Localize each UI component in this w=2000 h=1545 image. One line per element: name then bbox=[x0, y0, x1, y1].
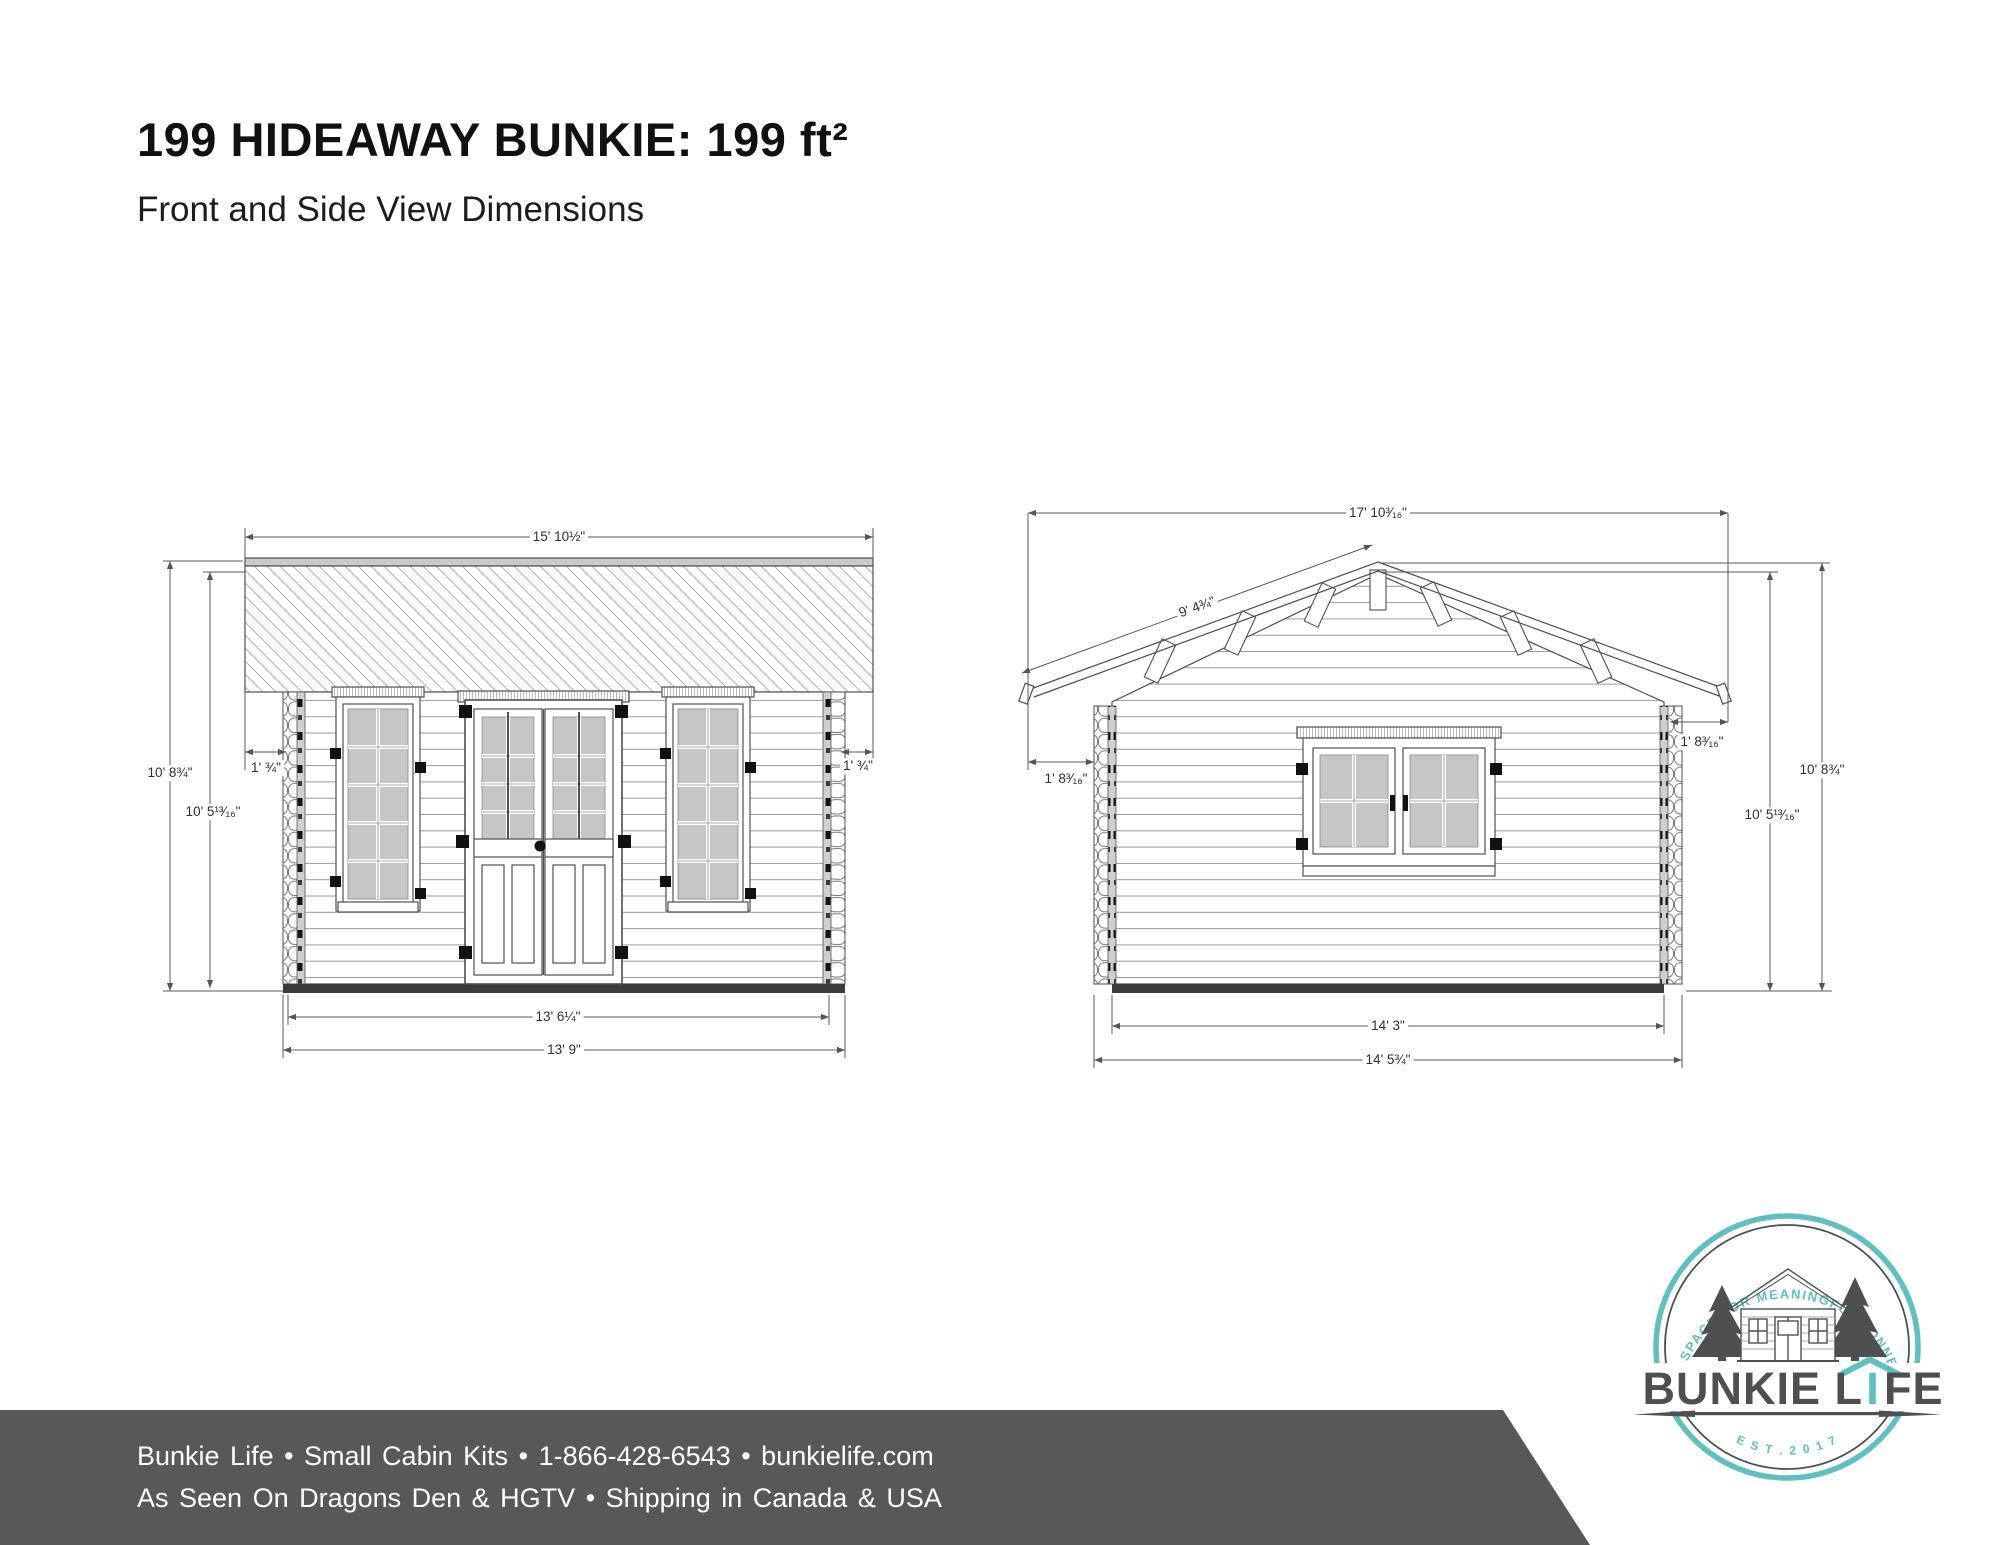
front-door bbox=[456, 691, 631, 984]
side-base bbox=[1112, 984, 1664, 993]
dim-front-total-height: 10' 8¾" bbox=[145, 765, 196, 781]
logo-brand-left: BUNKIE L bbox=[1643, 1363, 1864, 1414]
front-roof bbox=[245, 558, 873, 692]
dim-side-overhang-right: 1' 8³⁄₁₆" bbox=[1678, 734, 1727, 750]
front-base bbox=[283, 984, 845, 993]
dim-front-base-width: 13' 9" bbox=[544, 1042, 584, 1058]
corner-post-left bbox=[297, 692, 305, 984]
logo-brand-right: FE bbox=[1884, 1363, 1944, 1414]
dim-side-total-height: 10' 8¾" bbox=[1797, 762, 1848, 778]
logo-brand-text: BUNKIE L I FE bbox=[1643, 1363, 1944, 1414]
logo-brand-i: I bbox=[1866, 1363, 1880, 1414]
dim-front-wall-width: 13' 6¼" bbox=[533, 1009, 584, 1025]
door-handle-icon bbox=[535, 841, 546, 852]
side-corner-post-right bbox=[1660, 706, 1668, 984]
dim-side-overhang-left: 1' 8³⁄₁₆" bbox=[1042, 771, 1091, 787]
dim-front-overhang-left: 1' ¾" bbox=[248, 760, 284, 776]
side-corner-post-left bbox=[1108, 706, 1116, 984]
dim-side-roof-width: 17' 10³⁄₁₆" bbox=[1346, 505, 1410, 521]
front-window-left bbox=[330, 687, 426, 912]
side-window bbox=[1296, 727, 1502, 876]
front-view-drawing bbox=[163, 528, 873, 1058]
dim-front-roof-width: 15' 10½" bbox=[530, 529, 588, 545]
brand-logo: EXTRA SPACE FOR MEANINGFUL CONNECTION bbox=[1637, 1197, 1937, 1497]
dim-front-overhang-right: 1' ¾" bbox=[840, 758, 876, 774]
dim-side-base-width: 14' 5¾" bbox=[1363, 1052, 1414, 1068]
dim-side-wall-height: 10' 5¹³⁄₁₆" bbox=[1742, 807, 1803, 823]
spec-sheet: 199 HIDEAWAY BUNKIE: 199 ft² Front and S… bbox=[0, 0, 2000, 1545]
side-view-drawing bbox=[1019, 513, 1832, 1068]
front-window-right bbox=[660, 687, 756, 912]
dim-front-wall-height: 10' 5¹³⁄₁₆" bbox=[183, 804, 244, 820]
dim-side-floor-width: 14' 3" bbox=[1368, 1018, 1408, 1034]
corner-post-right bbox=[823, 692, 831, 984]
